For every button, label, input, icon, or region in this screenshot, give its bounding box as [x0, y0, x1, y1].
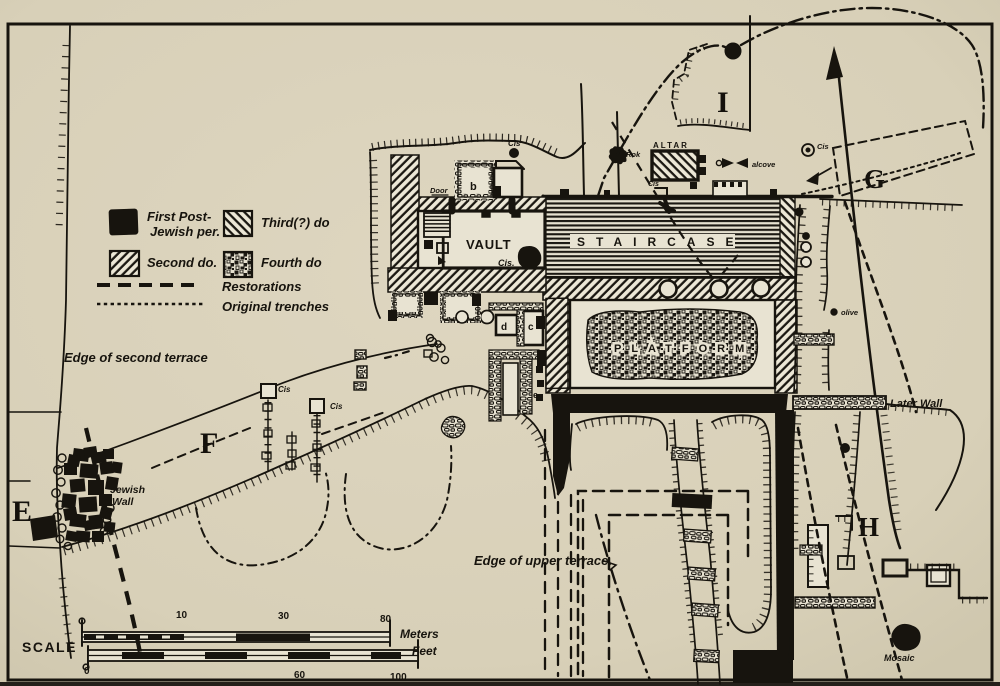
- svg-text:olive: olive: [841, 308, 858, 317]
- svg-text:d: d: [501, 322, 507, 333]
- svg-text:e: e: [533, 390, 538, 400]
- svg-text:VAULT: VAULT: [466, 237, 511, 252]
- svg-text:30: 30: [278, 611, 290, 622]
- svg-text:PLATFORM: PLATFORM: [614, 343, 754, 355]
- svg-text:Third(?) do: Third(?) do: [261, 215, 330, 230]
- svg-text:Jewish per.: Jewish per.: [150, 224, 220, 239]
- svg-text:Cis: Cis: [330, 402, 343, 411]
- svg-text:Cis: Cis: [817, 142, 829, 151]
- svg-text:Fourth do: Fourth do: [261, 255, 322, 270]
- svg-text:ALTAR: ALTAR: [653, 141, 689, 150]
- svg-text:80: 80: [380, 614, 392, 625]
- svg-text:b: b: [470, 181, 477, 193]
- svg-text:60: 60: [294, 670, 306, 681]
- svg-text:Cis: Cis: [278, 385, 291, 394]
- svg-text:c: c: [528, 322, 534, 333]
- svg-text:Cis: Cis: [508, 139, 521, 148]
- svg-text:Meters: Meters: [400, 627, 439, 641]
- svg-text:Jewish: Jewish: [110, 484, 145, 496]
- svg-text:Mosaic: Mosaic: [884, 653, 915, 663]
- svg-text:alcove: alcove: [752, 160, 775, 169]
- svg-text:Edge of upper terrace: Edge of upper terrace: [474, 553, 608, 568]
- svg-text:Second do.: Second do.: [147, 255, 217, 270]
- svg-text:Restorations: Restorations: [222, 279, 301, 294]
- svg-text:Wall: Wall: [112, 496, 134, 508]
- svg-text:Rok: Rok: [626, 150, 641, 159]
- svg-text:10: 10: [176, 610, 188, 621]
- svg-text:Cis.: Cis.: [498, 258, 515, 268]
- svg-text:0: 0: [84, 666, 90, 677]
- svg-text:I: I: [717, 86, 729, 119]
- svg-text:E: E: [12, 495, 32, 528]
- svg-text:STAIRCASE: STAIRCASE: [577, 235, 744, 249]
- svg-text:Original trenches: Original trenches: [222, 299, 329, 314]
- svg-text:Feet: Feet: [412, 644, 438, 658]
- svg-text:Edge of second terrace: Edge of second terrace: [64, 350, 208, 365]
- svg-text:Door: Door: [430, 186, 449, 195]
- svg-text:First Post-: First Post-: [147, 209, 211, 224]
- svg-text:100: 100: [390, 672, 407, 683]
